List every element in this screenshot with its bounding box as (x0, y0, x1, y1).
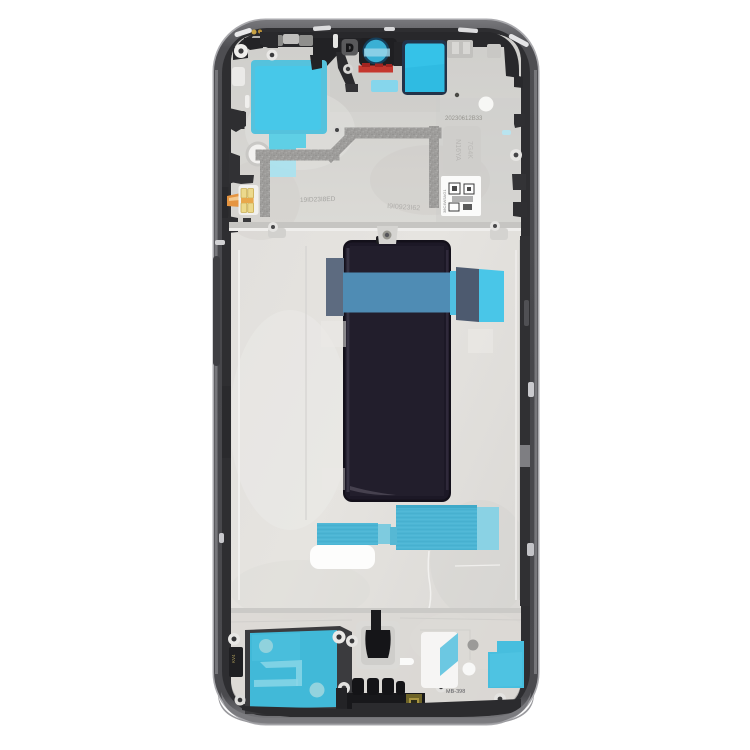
svg-text:38C4W5AG1: 38C4W5AG1 (442, 189, 447, 213)
svg-text:20230612B33: 20230612B33 (445, 116, 483, 122)
svg-text:19ID23I8ED: 19ID23I8ED (300, 196, 336, 204)
svg-text:KV4: KV4 (231, 654, 236, 663)
svg-text:N16YA: N16YA (454, 139, 461, 161)
svg-text:MB-398: MB-398 (446, 689, 465, 695)
svg-text:7G4K: 7G4K (466, 141, 473, 159)
